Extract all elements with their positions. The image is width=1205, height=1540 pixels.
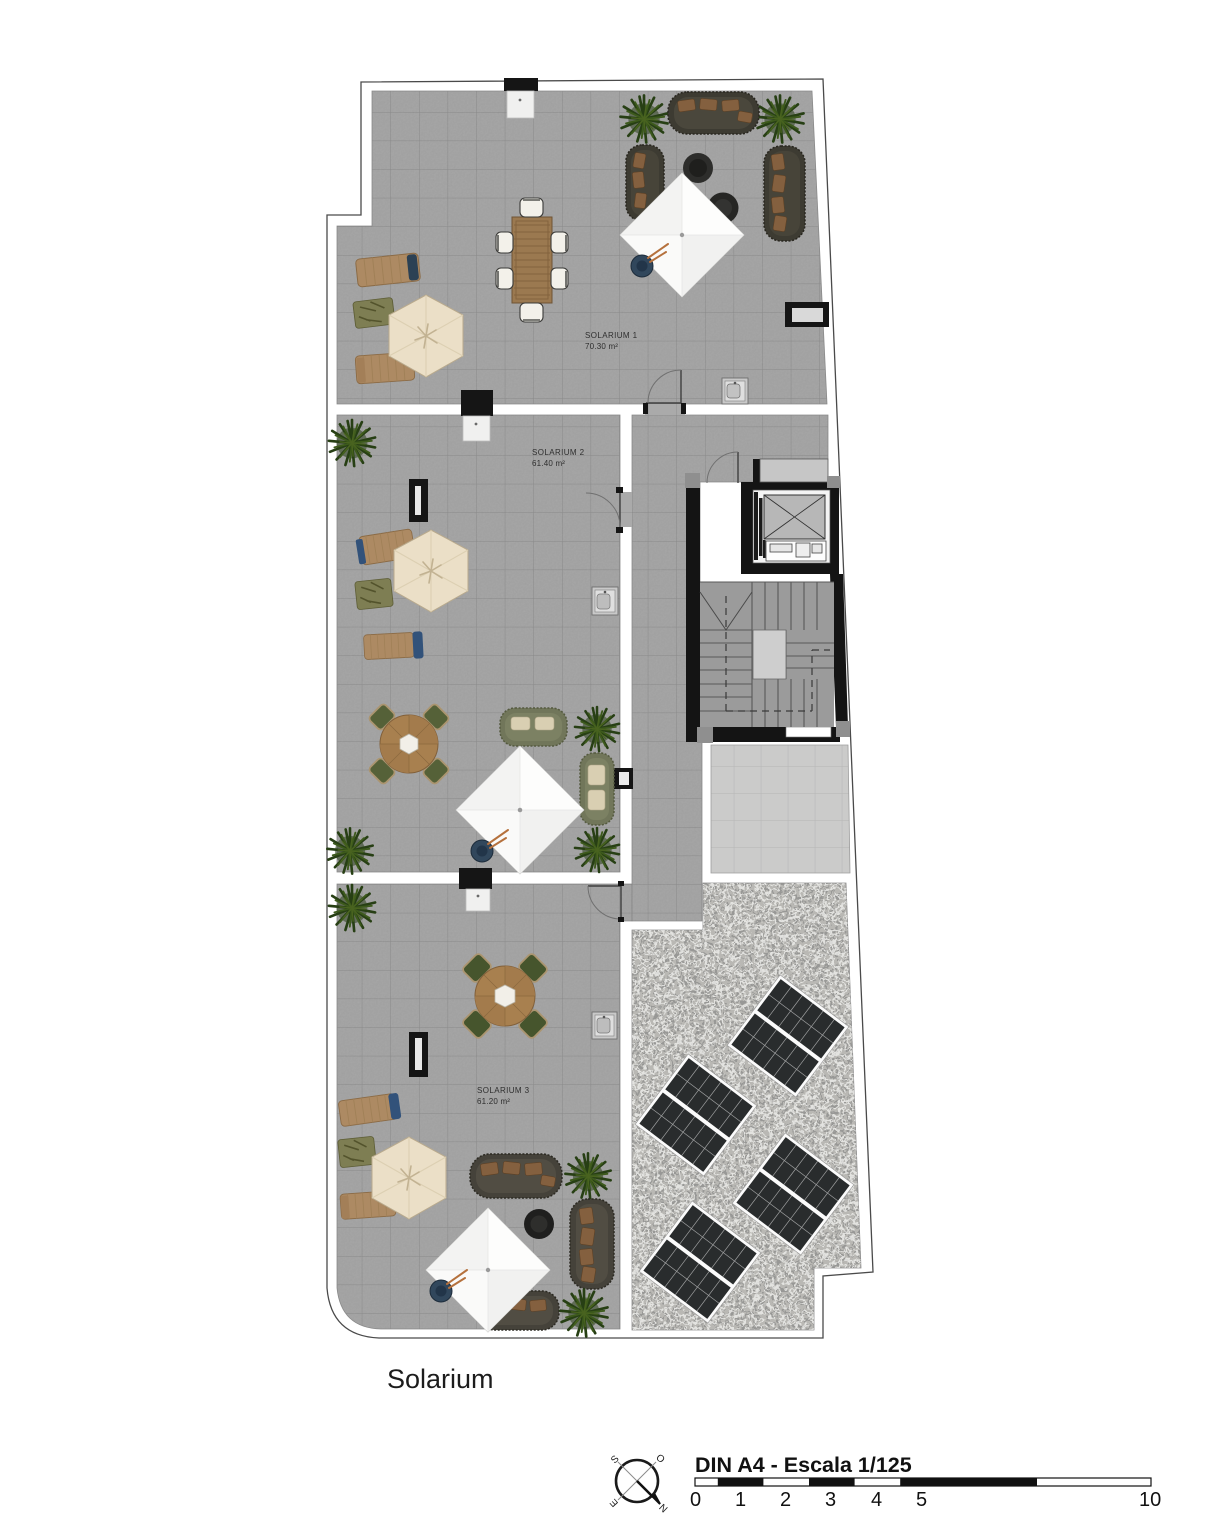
svg-text:61.20 m²: 61.20 m² bbox=[477, 1097, 510, 1106]
svg-text:5: 5 bbox=[916, 1489, 927, 1511]
svg-text:Solarium: Solarium bbox=[387, 1364, 494, 1394]
svg-text:3: 3 bbox=[825, 1489, 836, 1511]
svg-text:DIN A4 - Escala 1/125: DIN A4 - Escala 1/125 bbox=[695, 1453, 912, 1477]
svg-text:2: 2 bbox=[780, 1489, 791, 1511]
svg-text:1: 1 bbox=[735, 1489, 746, 1511]
svg-text:SOLARIUM 1: SOLARIUM 1 bbox=[585, 331, 638, 340]
svg-text:10: 10 bbox=[1139, 1489, 1161, 1511]
svg-text:4: 4 bbox=[871, 1489, 882, 1511]
svg-text:61.40 m²: 61.40 m² bbox=[532, 459, 565, 468]
svg-text:SOLARIUM 3: SOLARIUM 3 bbox=[477, 1086, 530, 1095]
svg-text:0: 0 bbox=[690, 1489, 701, 1511]
svg-text:70.30 m²: 70.30 m² bbox=[585, 342, 618, 351]
svg-text:SOLARIUM 2: SOLARIUM 2 bbox=[532, 448, 585, 457]
